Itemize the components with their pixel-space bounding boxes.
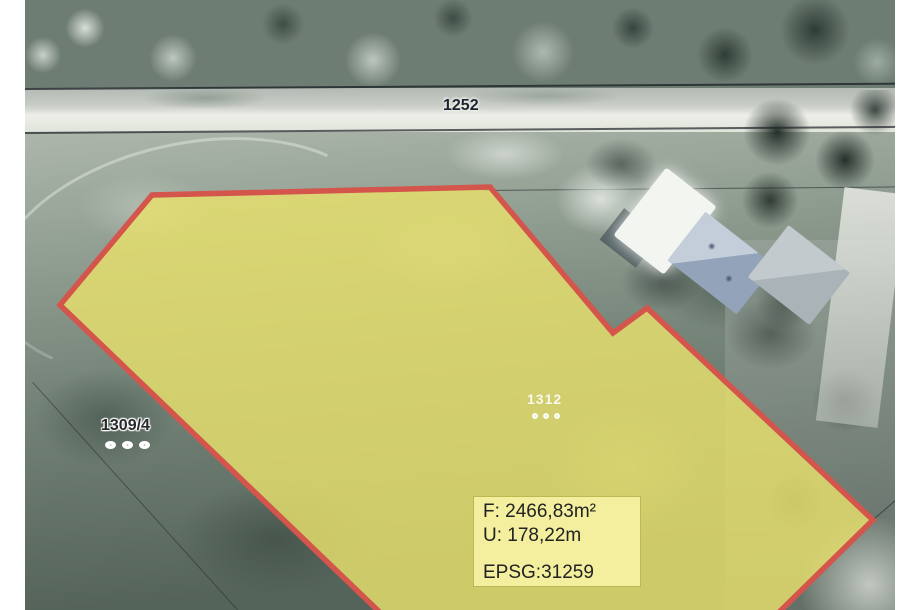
parcel-marker-dots-neighbor [105, 441, 150, 449]
parcel-marker-dots-selected [532, 413, 560, 419]
parcel-overlay-layer [25, 0, 895, 610]
parcel-label-neighbor: 1309/4 [101, 417, 150, 435]
parcel-label-selected: 1312 [527, 391, 562, 407]
marker-dot-icon [532, 413, 538, 419]
orthophoto-canvas: 1252 1309/4 1312 F: 2466,83m² U: 178,22m… [25, 0, 895, 610]
parcel-info-box: F: 2466,83m² U: 178,22m EPSG:31259 [473, 496, 641, 587]
cadastral-map-view: 1252 1309/4 1312 F: 2466,83m² U: 178,22m… [0, 0, 915, 610]
marker-dot-icon [543, 413, 549, 419]
parcel-1312-polygon[interactable] [60, 187, 873, 610]
parcel-label-road: 1252 [443, 97, 479, 115]
marker-dot-icon [122, 441, 133, 449]
marker-dot-icon [139, 441, 150, 449]
parcel-perimeter-value: U: 178,22m [483, 524, 631, 548]
crs-code-value: EPSG:31259 [483, 561, 631, 585]
marker-dot-icon [105, 441, 116, 449]
parcel-area-value: F: 2466,83m² [483, 500, 631, 524]
marker-dot-icon [554, 413, 560, 419]
